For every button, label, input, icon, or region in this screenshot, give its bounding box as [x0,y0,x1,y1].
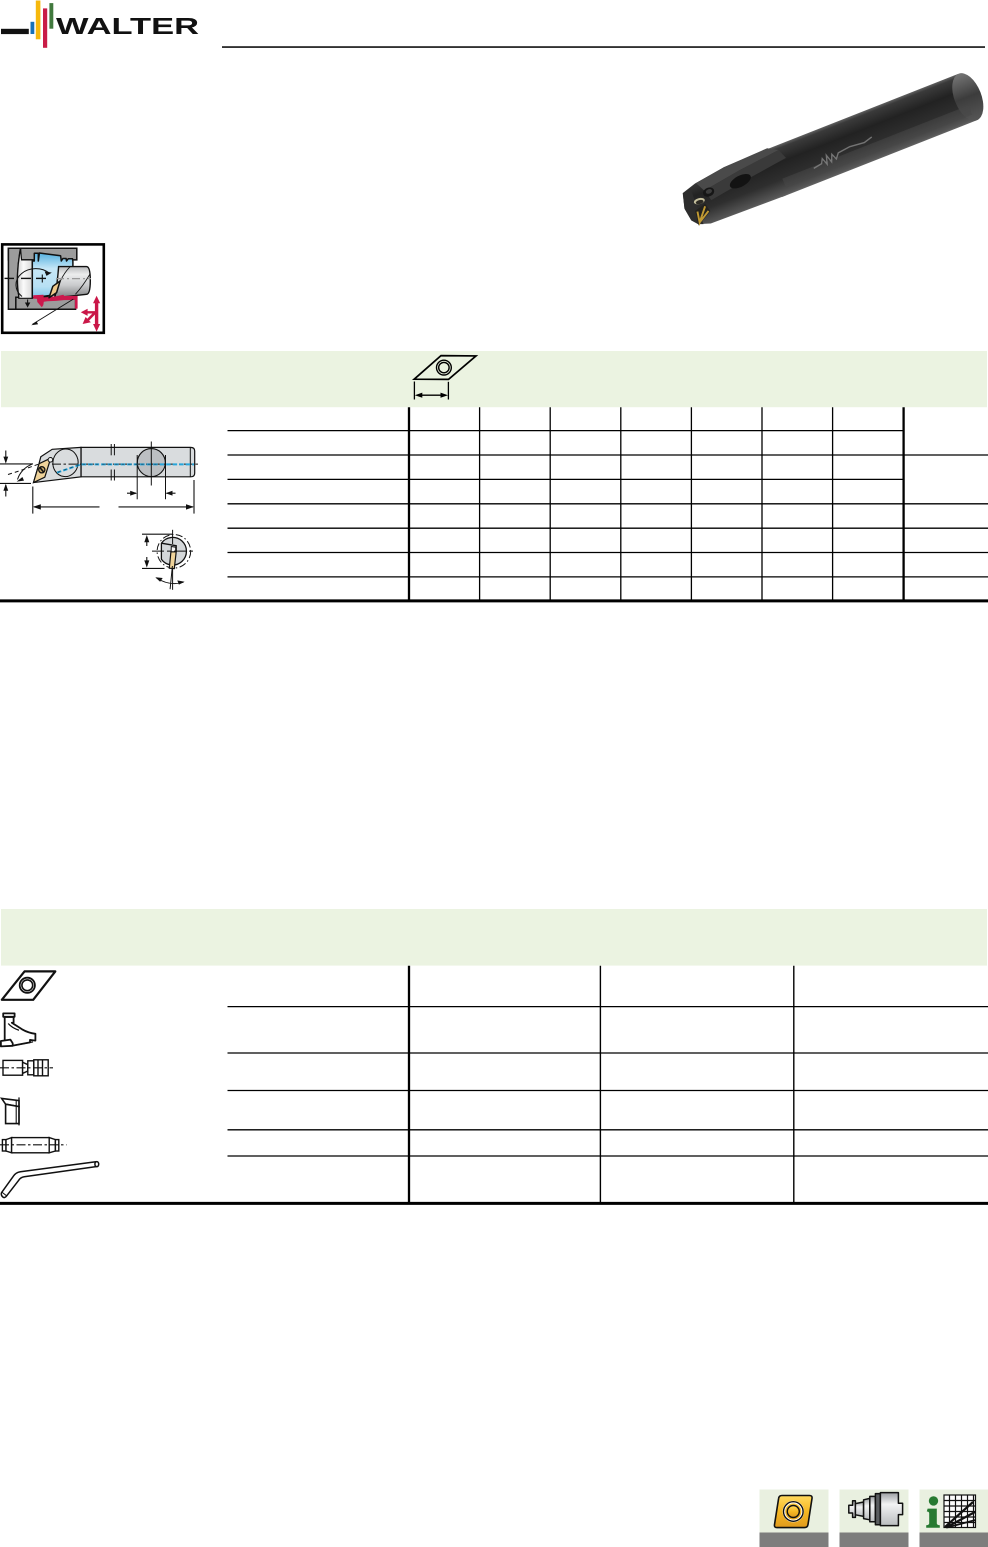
svg-text:WALTER: WALTER [56,13,200,39]
